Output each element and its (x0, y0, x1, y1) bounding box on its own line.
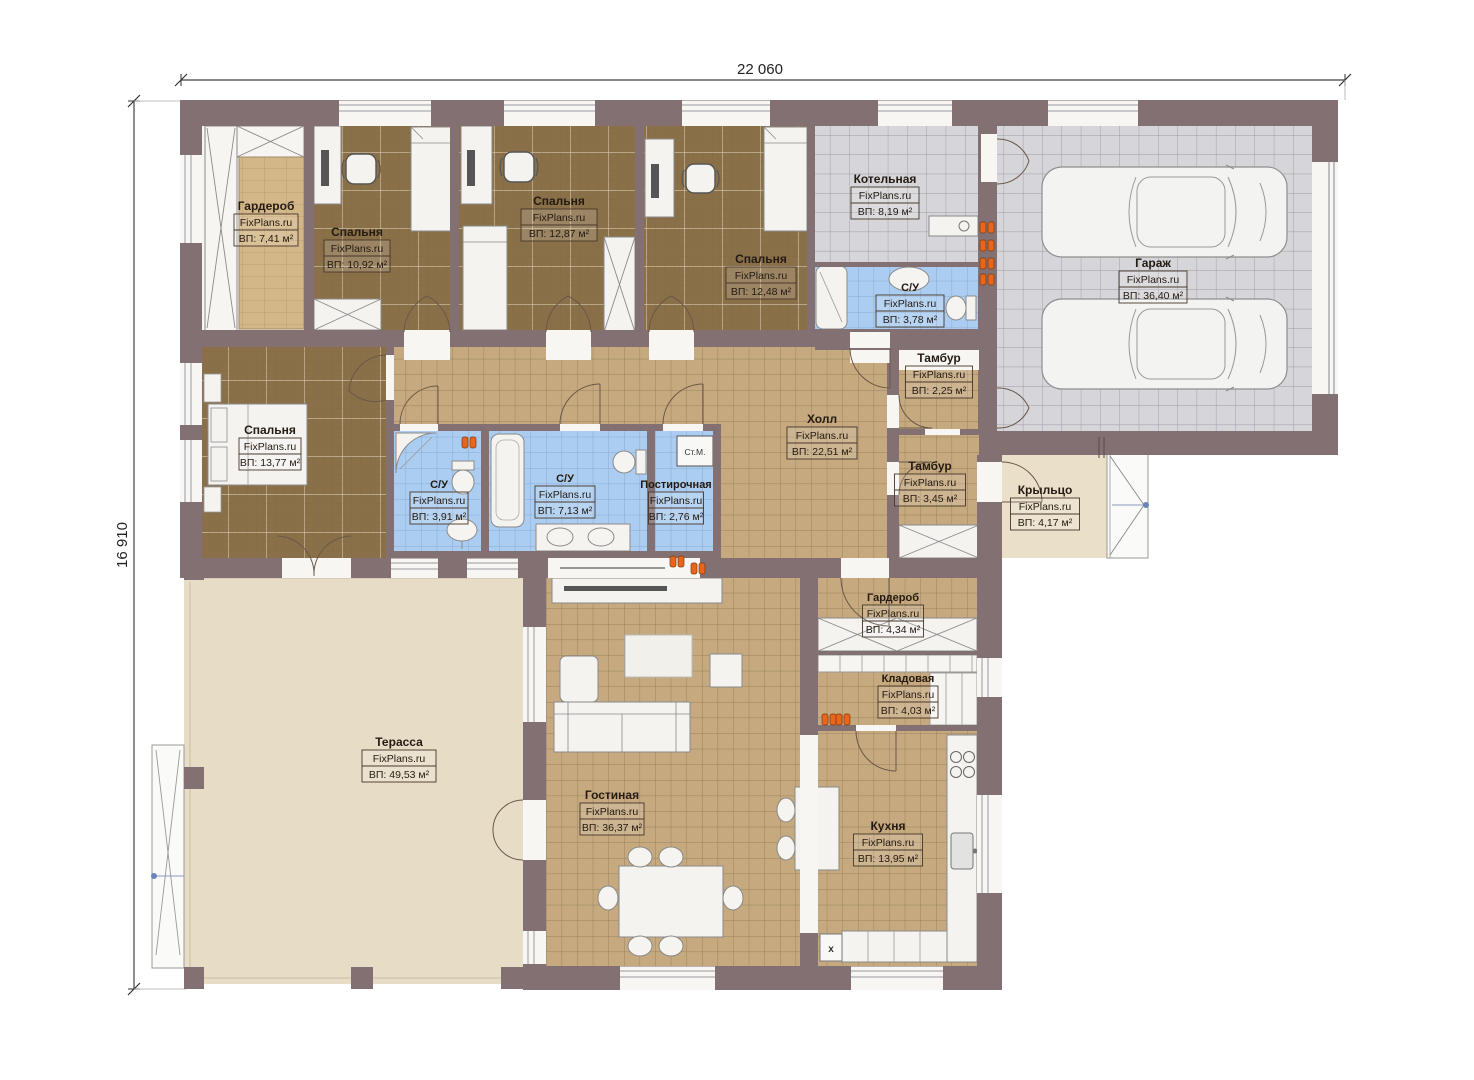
svg-text:FixPlans.ru: FixPlans.ru (904, 477, 957, 489)
svg-text:FixPlans.ru: FixPlans.ru (862, 837, 915, 849)
svg-text:FixPlans.ru: FixPlans.ru (913, 369, 966, 381)
svg-text:FixPlans.ru: FixPlans.ru (796, 430, 849, 442)
svg-text:FixPlans.ru: FixPlans.ru (735, 270, 788, 282)
svg-text:ВП: 10,92 м²: ВП: 10,92 м² (327, 259, 388, 271)
svg-text:Кухня: Кухня (870, 819, 905, 833)
svg-text:FixPlans.ru: FixPlans.ru (244, 441, 297, 453)
svg-text:Крыльцо: Крыльцо (1018, 483, 1073, 497)
svg-text:Спальня: Спальня (244, 423, 296, 437)
svg-text:ВП: 4,17 м²: ВП: 4,17 м² (1018, 517, 1073, 529)
svg-text:ВП: 4,34 м²: ВП: 4,34 м² (866, 624, 921, 636)
svg-text:Тамбур: Тамбур (917, 351, 961, 365)
svg-text:Гардероб: Гардероб (867, 592, 919, 604)
svg-text:ВП: 2,76 м²: ВП: 2,76 м² (649, 511, 704, 523)
svg-text:Постирочная: Постирочная (640, 479, 711, 491)
svg-text:Ст.М.: Ст.М. (685, 447, 706, 457)
svg-text:FixPlans.ru: FixPlans.ru (1127, 274, 1180, 286)
svg-text:ВП: 13,77 м²: ВП: 13,77 м² (240, 457, 301, 469)
svg-text:ВП: 36,37 м²: ВП: 36,37 м² (582, 822, 643, 834)
svg-text:Котельная: Котельная (854, 172, 917, 186)
svg-text:Гардероб: Гардероб (238, 199, 295, 213)
svg-text:22 060: 22 060 (737, 61, 783, 78)
svg-text:FixPlans.ru: FixPlans.ru (867, 608, 920, 620)
svg-text:Тамбур: Тамбур (908, 459, 952, 473)
svg-text:ВП: 13,95 м²: ВП: 13,95 м² (858, 853, 919, 865)
svg-text:Гостиная: Гостиная (585, 788, 639, 802)
svg-text:FixPlans.ru: FixPlans.ru (539, 489, 592, 501)
svg-text:ВП: 8,19 м²: ВП: 8,19 м² (858, 206, 913, 218)
svg-text:Гараж: Гараж (1135, 256, 1171, 270)
svg-text:ВП: 22,51 м²: ВП: 22,51 м² (792, 446, 853, 458)
svg-text:ВП: 3,45 м²: ВП: 3,45 м² (903, 493, 958, 505)
svg-text:Холл: Холл (807, 412, 837, 426)
svg-text:FixPlans.ru: FixPlans.ru (882, 689, 935, 701)
svg-text:ВП: 4,03 м²: ВП: 4,03 м² (881, 705, 936, 717)
svg-text:С/У: С/У (556, 473, 574, 485)
svg-text:FixPlans.ru: FixPlans.ru (533, 212, 586, 224)
svg-text:ВП: 7,41 м²: ВП: 7,41 м² (239, 233, 294, 245)
svg-text:FixPlans.ru: FixPlans.ru (413, 495, 466, 507)
svg-text:FixPlans.ru: FixPlans.ru (884, 298, 937, 310)
svg-text:ВП: 3,78 м²: ВП: 3,78 м² (883, 314, 938, 326)
svg-text:FixPlans.ru: FixPlans.ru (586, 806, 639, 818)
svg-text:Спальня: Спальня (331, 225, 383, 239)
svg-text:С/У: С/У (901, 282, 919, 294)
svg-text:Кладовая: Кладовая (882, 673, 935, 685)
svg-text:FixPlans.ru: FixPlans.ru (650, 495, 703, 507)
svg-text:ВП: 12,87 м²: ВП: 12,87 м² (529, 228, 590, 240)
svg-text:FixPlans.ru: FixPlans.ru (240, 217, 293, 229)
svg-text:FixPlans.ru: FixPlans.ru (859, 190, 912, 202)
svg-text:ВП: 12,48 м²: ВП: 12,48 м² (731, 286, 792, 298)
svg-text:С/У: С/У (430, 479, 448, 491)
svg-text:Спальня: Спальня (533, 194, 585, 208)
svg-text:ВП: 49,53 м²: ВП: 49,53 м² (369, 769, 430, 781)
svg-text:ВП: 3,91 м²: ВП: 3,91 м² (412, 511, 467, 523)
svg-text:x: x (828, 944, 834, 955)
svg-text:ВП: 36,40 м²: ВП: 36,40 м² (1123, 290, 1184, 302)
svg-text:ВП: 2,25 м²: ВП: 2,25 м² (912, 385, 967, 397)
svg-text:FixPlans.ru: FixPlans.ru (1019, 501, 1072, 513)
svg-text:ВП: 7,13 м²: ВП: 7,13 м² (538, 505, 593, 517)
svg-text:16 910: 16 910 (114, 522, 131, 568)
svg-text:Терасса: Терасса (375, 735, 423, 749)
svg-text:Спальня: Спальня (735, 252, 787, 266)
svg-text:FixPlans.ru: FixPlans.ru (373, 753, 426, 765)
svg-text:FixPlans.ru: FixPlans.ru (331, 243, 384, 255)
